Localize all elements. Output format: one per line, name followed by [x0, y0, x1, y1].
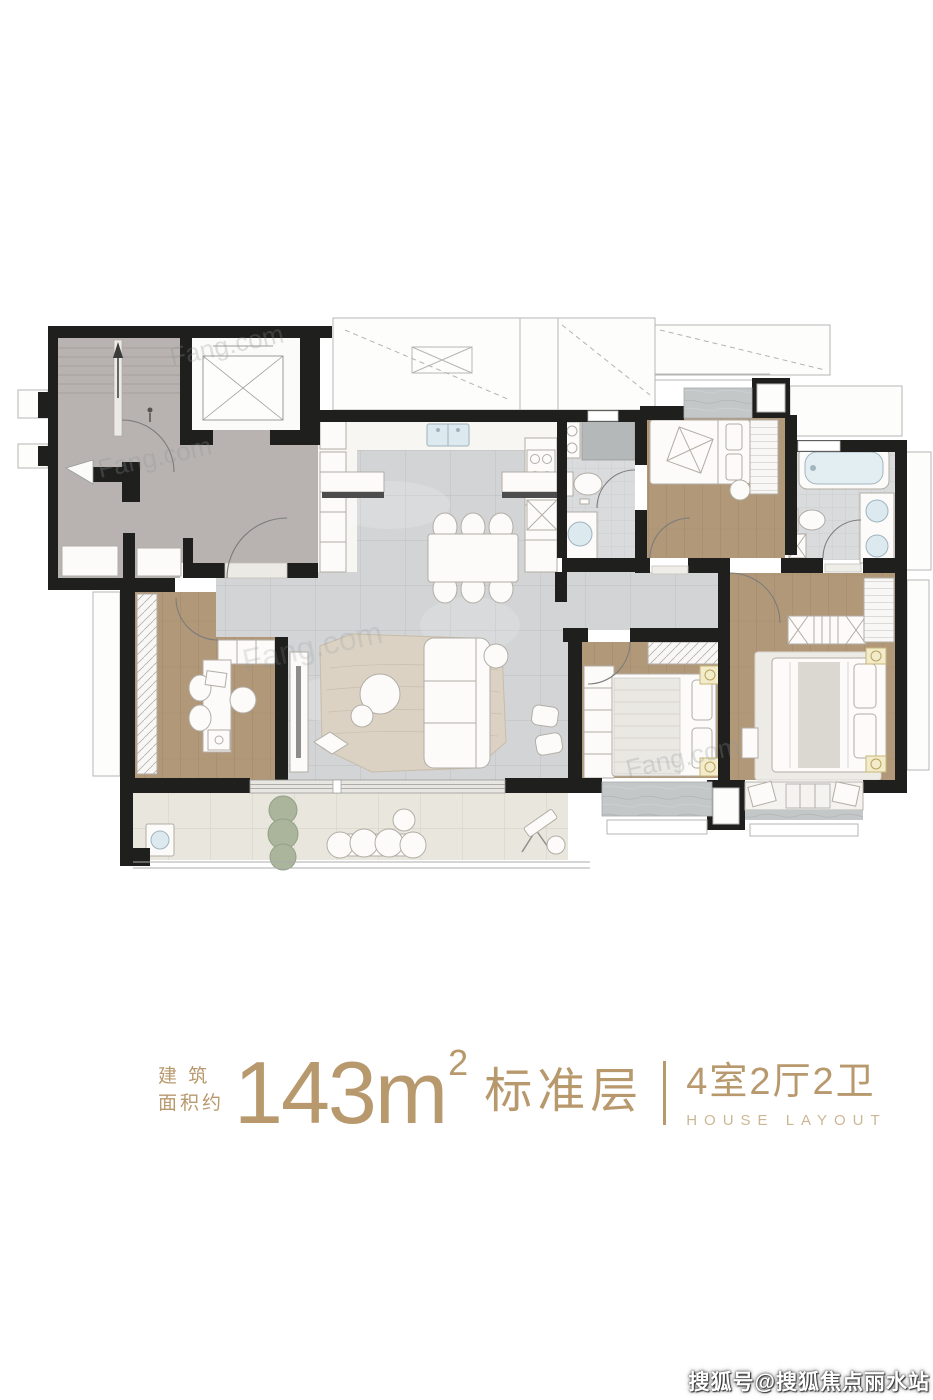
plant	[270, 844, 296, 870]
floor-plan-page: Fang.com Fang.com Fang.com Fang.com 建 筑 …	[0, 0, 933, 1400]
toilet	[799, 510, 825, 530]
entry-floor	[216, 572, 288, 637]
closet	[750, 420, 778, 494]
floor-type-label: 标准层	[484, 1051, 643, 1121]
bedside-lamp	[866, 756, 886, 772]
wardrobe	[137, 594, 157, 774]
closet	[864, 578, 894, 642]
balcony-railing	[133, 862, 590, 868]
area-exponent: 2	[448, 1042, 468, 1083]
balcony-sliding-door	[250, 780, 505, 793]
dining-table	[428, 534, 518, 582]
build-label-top: 建 筑	[158, 1063, 224, 1090]
spec-footer: 建 筑 面积约 143m2 标准层 4室2厅2卫 HOUSE LAYOUT	[158, 1050, 887, 1129]
bay-window-middle	[602, 782, 712, 816]
layout-spec-en: HOUSE LAYOUT	[686, 1112, 886, 1129]
layout-spec: 4室2厅2卫 HOUSE LAYOUT	[686, 1050, 886, 1129]
build-area-label: 建 筑 面积约	[158, 1063, 224, 1117]
sofa	[424, 638, 490, 768]
layout-spec-cn: 4室2厅2卫	[686, 1050, 886, 1105]
bay-window-north	[684, 388, 752, 418]
build-label-bottom: 面积约	[158, 1090, 224, 1117]
corridor-floor	[545, 572, 720, 630]
wardrobe	[648, 642, 720, 664]
area-number: 143	[234, 1043, 375, 1142]
entry-threshold	[225, 563, 287, 578]
sohu-watermark: 搜狐号@搜狐焦点丽水站	[689, 1366, 930, 1396]
dining-area	[428, 513, 518, 603]
bedside-lamp	[700, 666, 720, 684]
wash-basin	[568, 522, 592, 546]
shower-area	[582, 418, 635, 460]
wardrobe	[788, 616, 866, 644]
toilet	[574, 473, 602, 495]
desk-chair	[230, 687, 256, 713]
area-value: 143m2	[234, 1057, 468, 1129]
footer-divider	[663, 1061, 666, 1125]
area-unit: m	[375, 1043, 446, 1142]
floor-plan: Fang.com Fang.com Fang.com Fang.com	[0, 0, 933, 900]
bay-window-master	[745, 781, 863, 836]
bedside-lamp	[866, 648, 886, 664]
